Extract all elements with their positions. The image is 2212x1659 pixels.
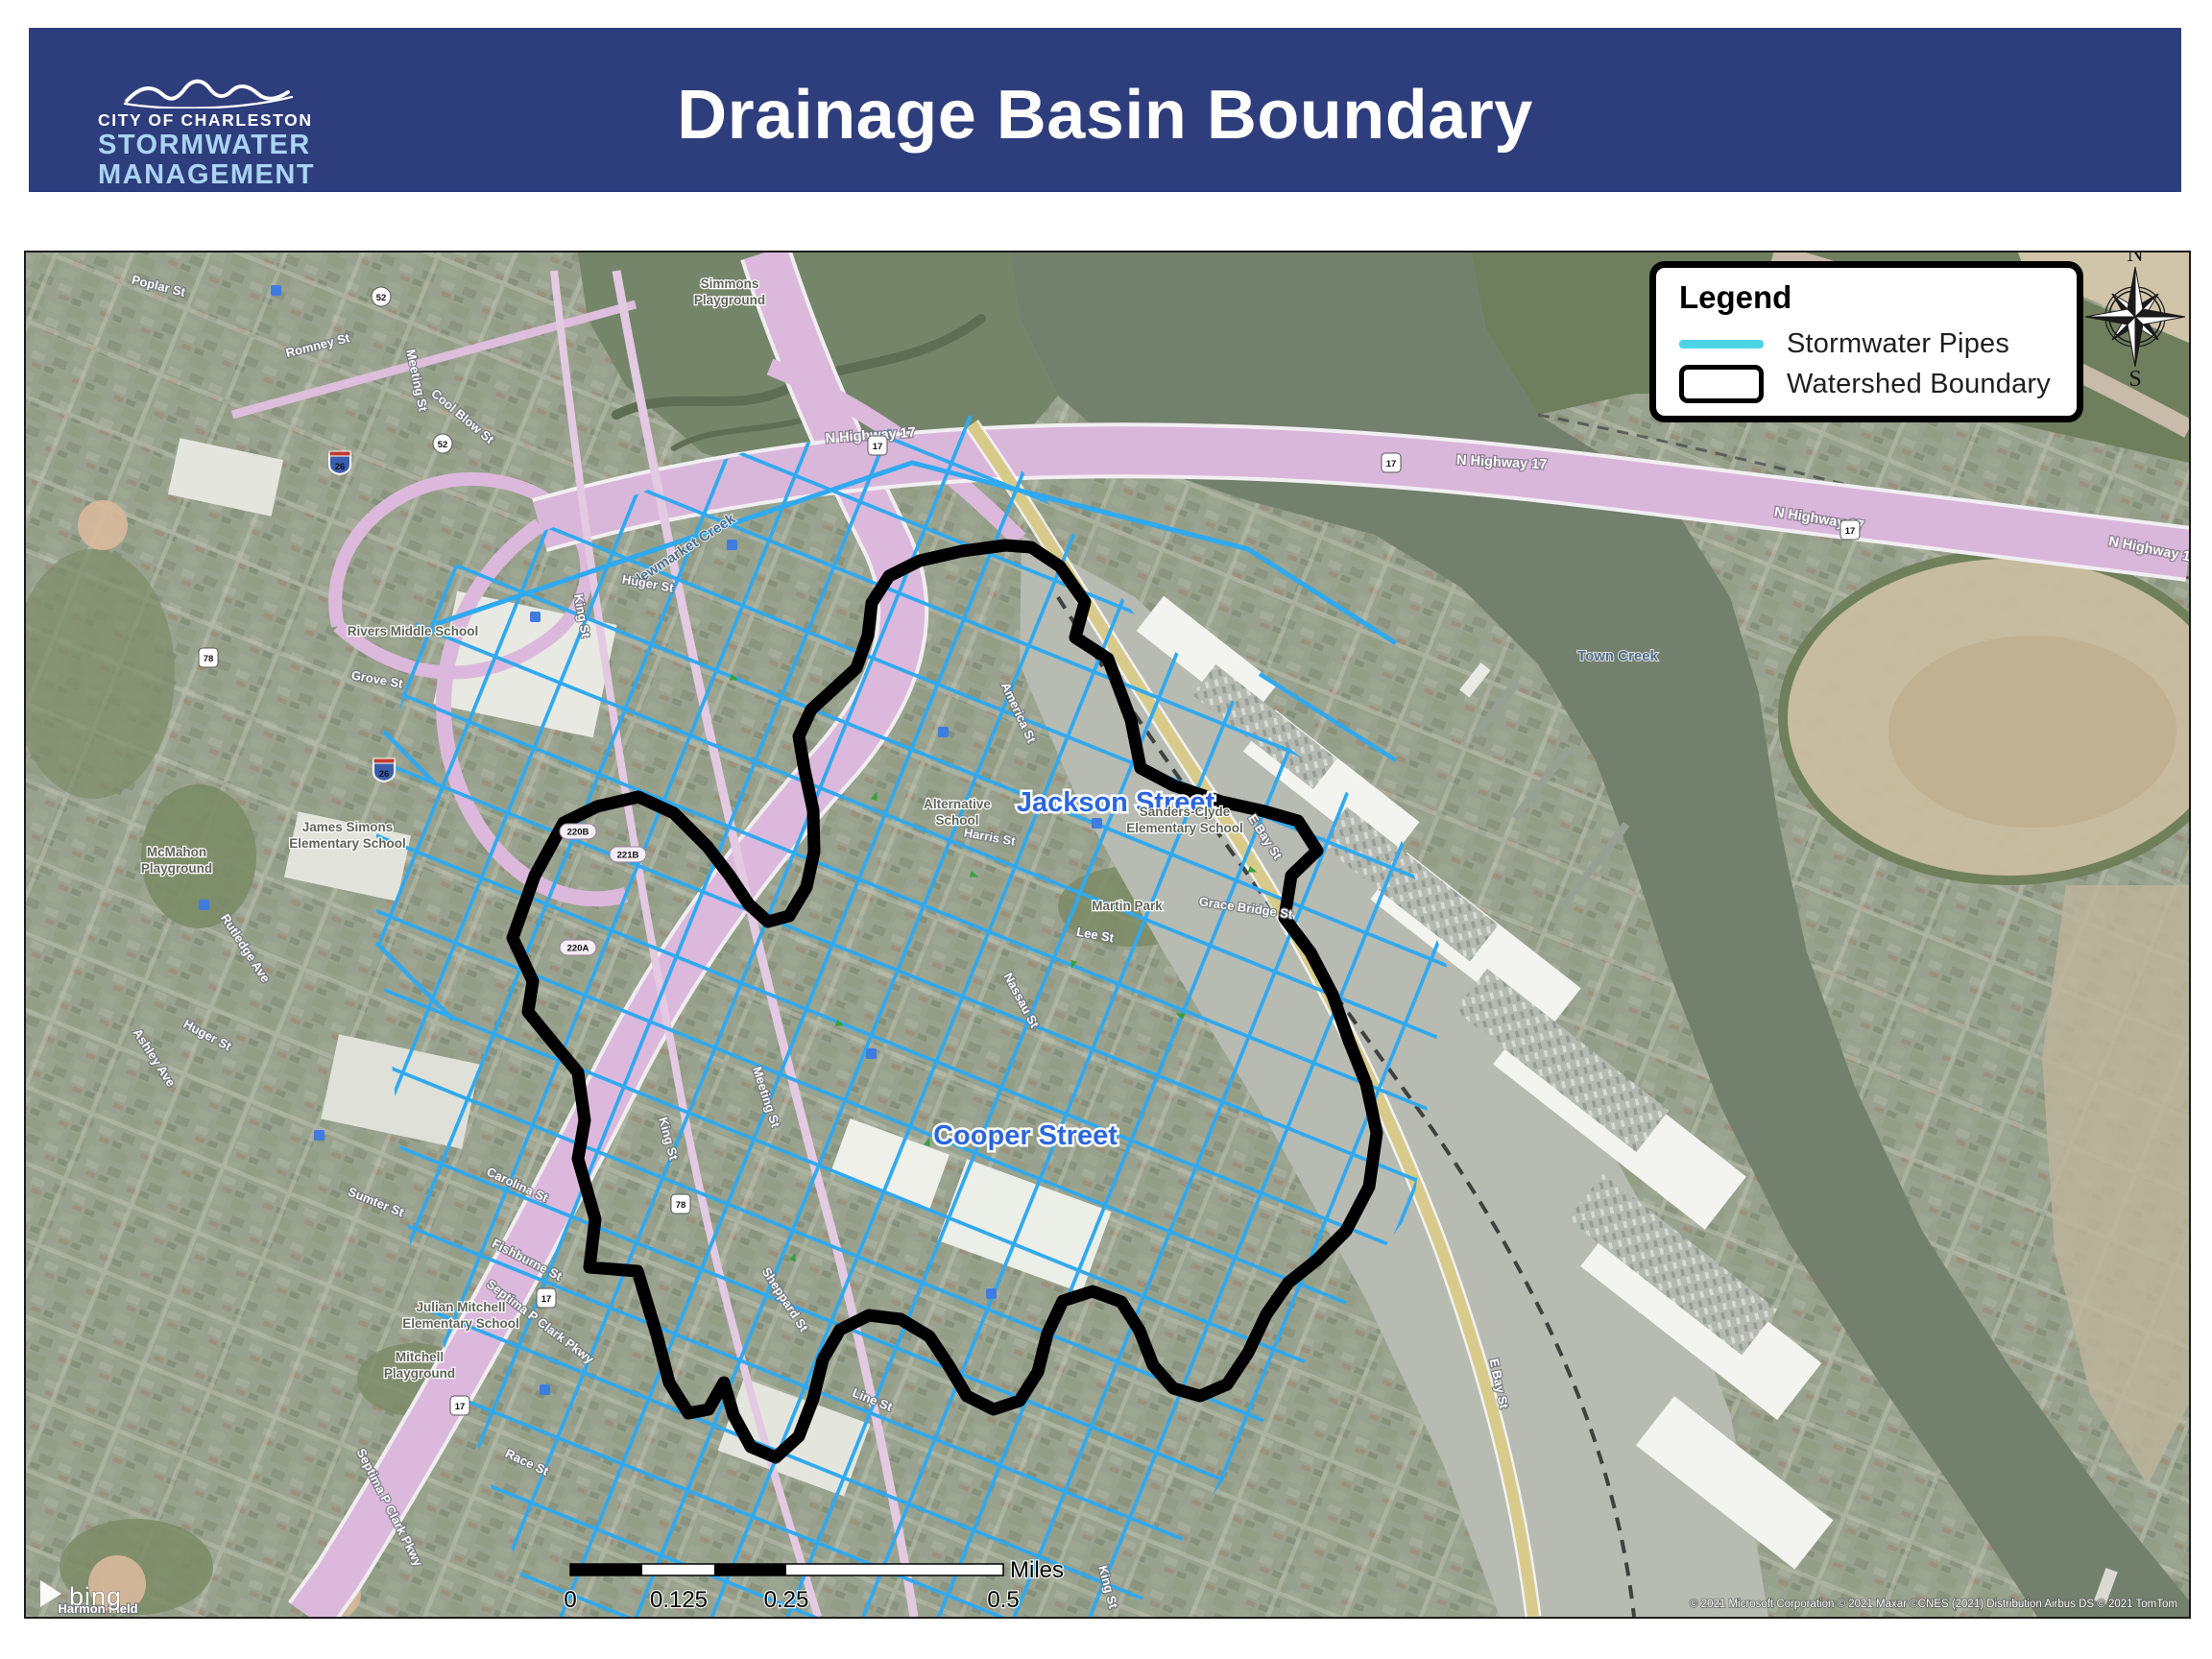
- legend-item-stormwater-pipes: Stormwater Pipes: [1679, 324, 2054, 364]
- wave-icon: [123, 78, 294, 108]
- page: CITY OF CHARLESTON STORMWATER MANAGEMENT…: [0, 0, 2212, 1659]
- scale-tick-2: 0.25: [764, 1587, 809, 1613]
- r220b-shield: 220B: [567, 828, 589, 838]
- mcmahon-label-1: McMahon: [147, 845, 206, 859]
- simmons-label-1: Simmons: [701, 276, 759, 291]
- sc52-shield-2: 52: [438, 440, 448, 450]
- rivers-school-label: Rivers Middle School: [348, 624, 479, 638]
- scale-tick-3: 0.5: [987, 1587, 1019, 1613]
- us78-shield-2: 78: [204, 654, 214, 664]
- city-logo: CITY OF CHARLESTON STORMWATER MANAGEMENT: [98, 78, 319, 190]
- map-canvas[interactable]: Jackson Street Cooper Street Town Creek …: [26, 252, 2189, 1617]
- map-attribution: © 2021 Microsoft Corporation © 2021 Maxa…: [1690, 1599, 2177, 1610]
- i26-shield-2: 26: [379, 769, 390, 780]
- sc52-shield-1: 52: [376, 293, 387, 303]
- james-simons-label-2: Elementary School: [289, 836, 406, 851]
- compass-south-label: S: [2128, 367, 2141, 392]
- cooper-street-label: Cooper Street: [933, 1120, 1118, 1151]
- compass-north-label: N: [2127, 252, 2143, 267]
- town-creek-label: Town Creek: [1577, 648, 1659, 664]
- us17-shield-2: 17: [1386, 459, 1397, 469]
- scale-unit-label: Miles: [1010, 1557, 1064, 1583]
- us17-shield-3: 17: [1845, 526, 1856, 537]
- legend-item-watershed-boundary: Watershed Boundary: [1679, 364, 2054, 404]
- us17-shield-5: 17: [455, 1402, 466, 1412]
- legend-title: Legend: [1679, 279, 2054, 316]
- bing-logo-text: bing: [69, 1582, 122, 1611]
- logo-org-text: CITY OF CHARLESTON: [98, 110, 319, 131]
- i26-shield-1: 26: [335, 462, 346, 472]
- james-simons-label-1: James Simons: [302, 820, 394, 834]
- simmons-label-2: Playground: [694, 293, 765, 307]
- scale-tick-1: 0.125: [650, 1587, 708, 1613]
- logo-dept-line2: MANAGEMENT: [98, 160, 319, 190]
- martin-park-label: Martin Park: [1092, 899, 1163, 913]
- map-viewport[interactable]: Jackson Street Cooper Street Town Creek …: [24, 251, 2191, 1619]
- r220a-shield: 220A: [567, 944, 589, 954]
- watershed-boundary-swatch: [1679, 365, 1764, 403]
- stormwater-pipes-swatch: [1679, 340, 1764, 349]
- r221b-shield: 221B: [617, 851, 639, 861]
- sanders-clyde-label-1: Sanders-Clyde: [1140, 805, 1231, 819]
- page-title: Drainage Basin Boundary: [677, 66, 1533, 155]
- julian-mitchell-label-1: Julian Mitchell: [416, 1300, 505, 1314]
- scale-tick-0: 0: [564, 1587, 576, 1613]
- legend-item-label: Stormwater Pipes: [1787, 328, 2009, 360]
- mcmahon-label-2: Playground: [141, 861, 212, 876]
- alternative-school-label-2: School: [935, 813, 978, 828]
- legend-item-label: Watershed Boundary: [1787, 369, 2051, 400]
- us17-shield-1: 17: [873, 442, 883, 452]
- mitchell-playground-label-2: Playground: [384, 1366, 455, 1381]
- julian-mitchell-label-2: Elementary School: [402, 1316, 519, 1331]
- logo-dept-line1: STORMWATER: [98, 131, 319, 160]
- legend-panel: Legend Stormwater Pipes Watershed Bounda…: [1649, 261, 2083, 422]
- header-banner: CITY OF CHARLESTON STORMWATER MANAGEMENT…: [29, 28, 2181, 192]
- us17-shield-4: 17: [541, 1294, 552, 1305]
- alternative-school-label-1: Alternative: [924, 797, 991, 811]
- mitchell-playground-label-1: Mitchell: [396, 1350, 444, 1364]
- sanders-clyde-label-2: Elementary School: [1126, 821, 1243, 835]
- us78-shield-1: 78: [676, 1200, 686, 1211]
